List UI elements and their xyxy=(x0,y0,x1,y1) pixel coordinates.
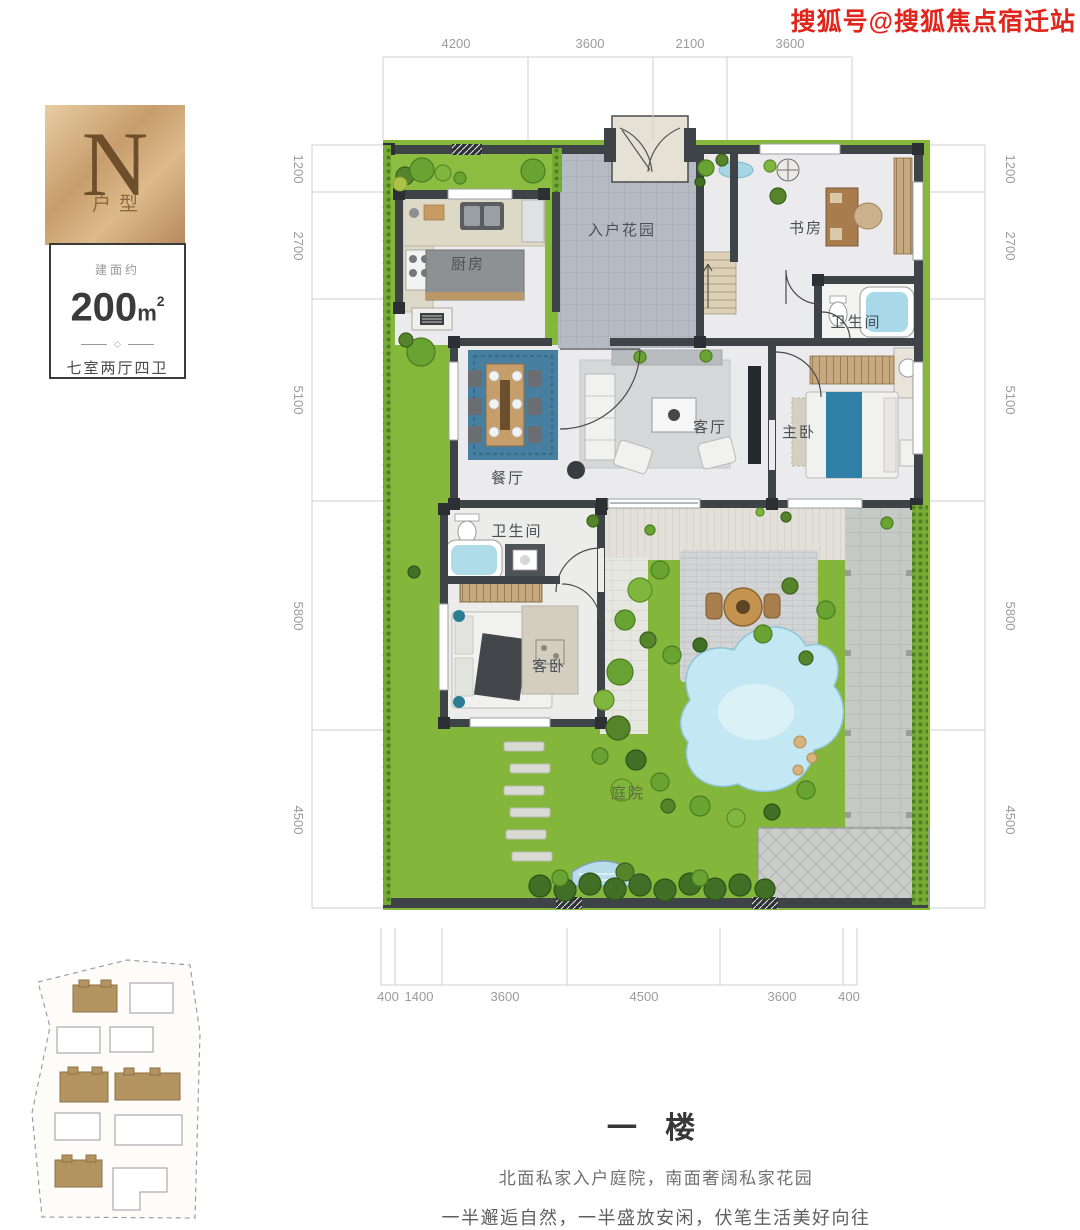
area-label: 建面约 xyxy=(51,261,184,278)
unit-type-badge: N 户型 xyxy=(45,105,185,245)
card-divider: ◇ xyxy=(51,340,184,349)
room-label-study: 书房 xyxy=(789,220,823,237)
floor-desc-line1: 北面私家入户庭院，南面奢阔私家花园 xyxy=(256,1164,1056,1189)
dim-left-0: 1200 xyxy=(291,155,306,184)
dim-left-3: 5800 xyxy=(291,602,306,631)
floor-description: 一 楼 北面私家入户庭院，南面奢阔私家花园 一半邂逅自然，一半盛放安闲，伏笔生活… xyxy=(256,1103,1056,1230)
dim-top-3: 3600 xyxy=(776,36,805,51)
entry-gate xyxy=(604,116,696,182)
dim-right-1: 2700 xyxy=(1003,232,1018,261)
room-label-bath-lower: 卫生间 xyxy=(491,523,542,540)
room-label-master: 主卧 xyxy=(782,424,816,441)
dim-bottom-5: 400 xyxy=(838,989,860,1004)
unit-type-suffix: 户型 xyxy=(45,189,185,216)
room-label-kitchen: 厨房 xyxy=(451,256,485,273)
room-label-entry-garden: 入户花园 xyxy=(588,222,656,239)
area-unit: m xyxy=(137,300,157,325)
dim-left-1: 2700 xyxy=(291,232,306,261)
room-label-bath-upper: 卫生间 xyxy=(830,314,881,331)
dim-top-0: 4200 xyxy=(442,36,471,51)
dim-top-1: 3600 xyxy=(576,36,605,51)
floor-desc-line2: 一半邂逅自然，一半盛放安闲，伏笔生活美好向往 xyxy=(256,1204,1056,1230)
diamond-glyph: ◇ xyxy=(114,340,121,349)
dim-bottom-0: 400 xyxy=(377,989,399,1004)
dim-right-2: 5100 xyxy=(1003,386,1018,415)
area-exponent: 2 xyxy=(157,293,165,309)
dim-right-3: 5800 xyxy=(1003,602,1018,631)
watermark-text: 搜狐号@搜狐焦点宿迁站 xyxy=(791,2,1076,38)
dim-bottom-1: 1400 xyxy=(405,989,434,1004)
dim-right-4: 4500 xyxy=(1003,806,1018,835)
dim-left-2: 5100 xyxy=(291,386,306,415)
dim-bottom-4: 3600 xyxy=(768,989,797,1004)
dim-left-4: 4500 xyxy=(291,806,306,835)
dim-top-2: 2100 xyxy=(676,36,705,51)
floor-title: 一 楼 xyxy=(256,1103,1056,1147)
room-label-living: 客厅 xyxy=(693,419,727,436)
dim-bottom-2: 3600 xyxy=(491,989,520,1004)
site-map xyxy=(32,960,200,1218)
dim-right-0: 1200 xyxy=(1003,155,1018,184)
area-info-card: 建面约 200m2 ◇ 七室两厅四卫 xyxy=(49,243,186,379)
room-label-dining: 餐厅 xyxy=(491,470,525,487)
room-label-courtyard: 庭院 xyxy=(611,784,645,802)
room-layout-text: 七室两厅四卫 xyxy=(51,357,184,378)
area-value: 200 xyxy=(70,285,137,329)
room-label-guest: 客卧 xyxy=(532,658,566,675)
area-value-row: 200m2 xyxy=(51,280,184,334)
dim-bottom-3: 4500 xyxy=(630,989,659,1004)
